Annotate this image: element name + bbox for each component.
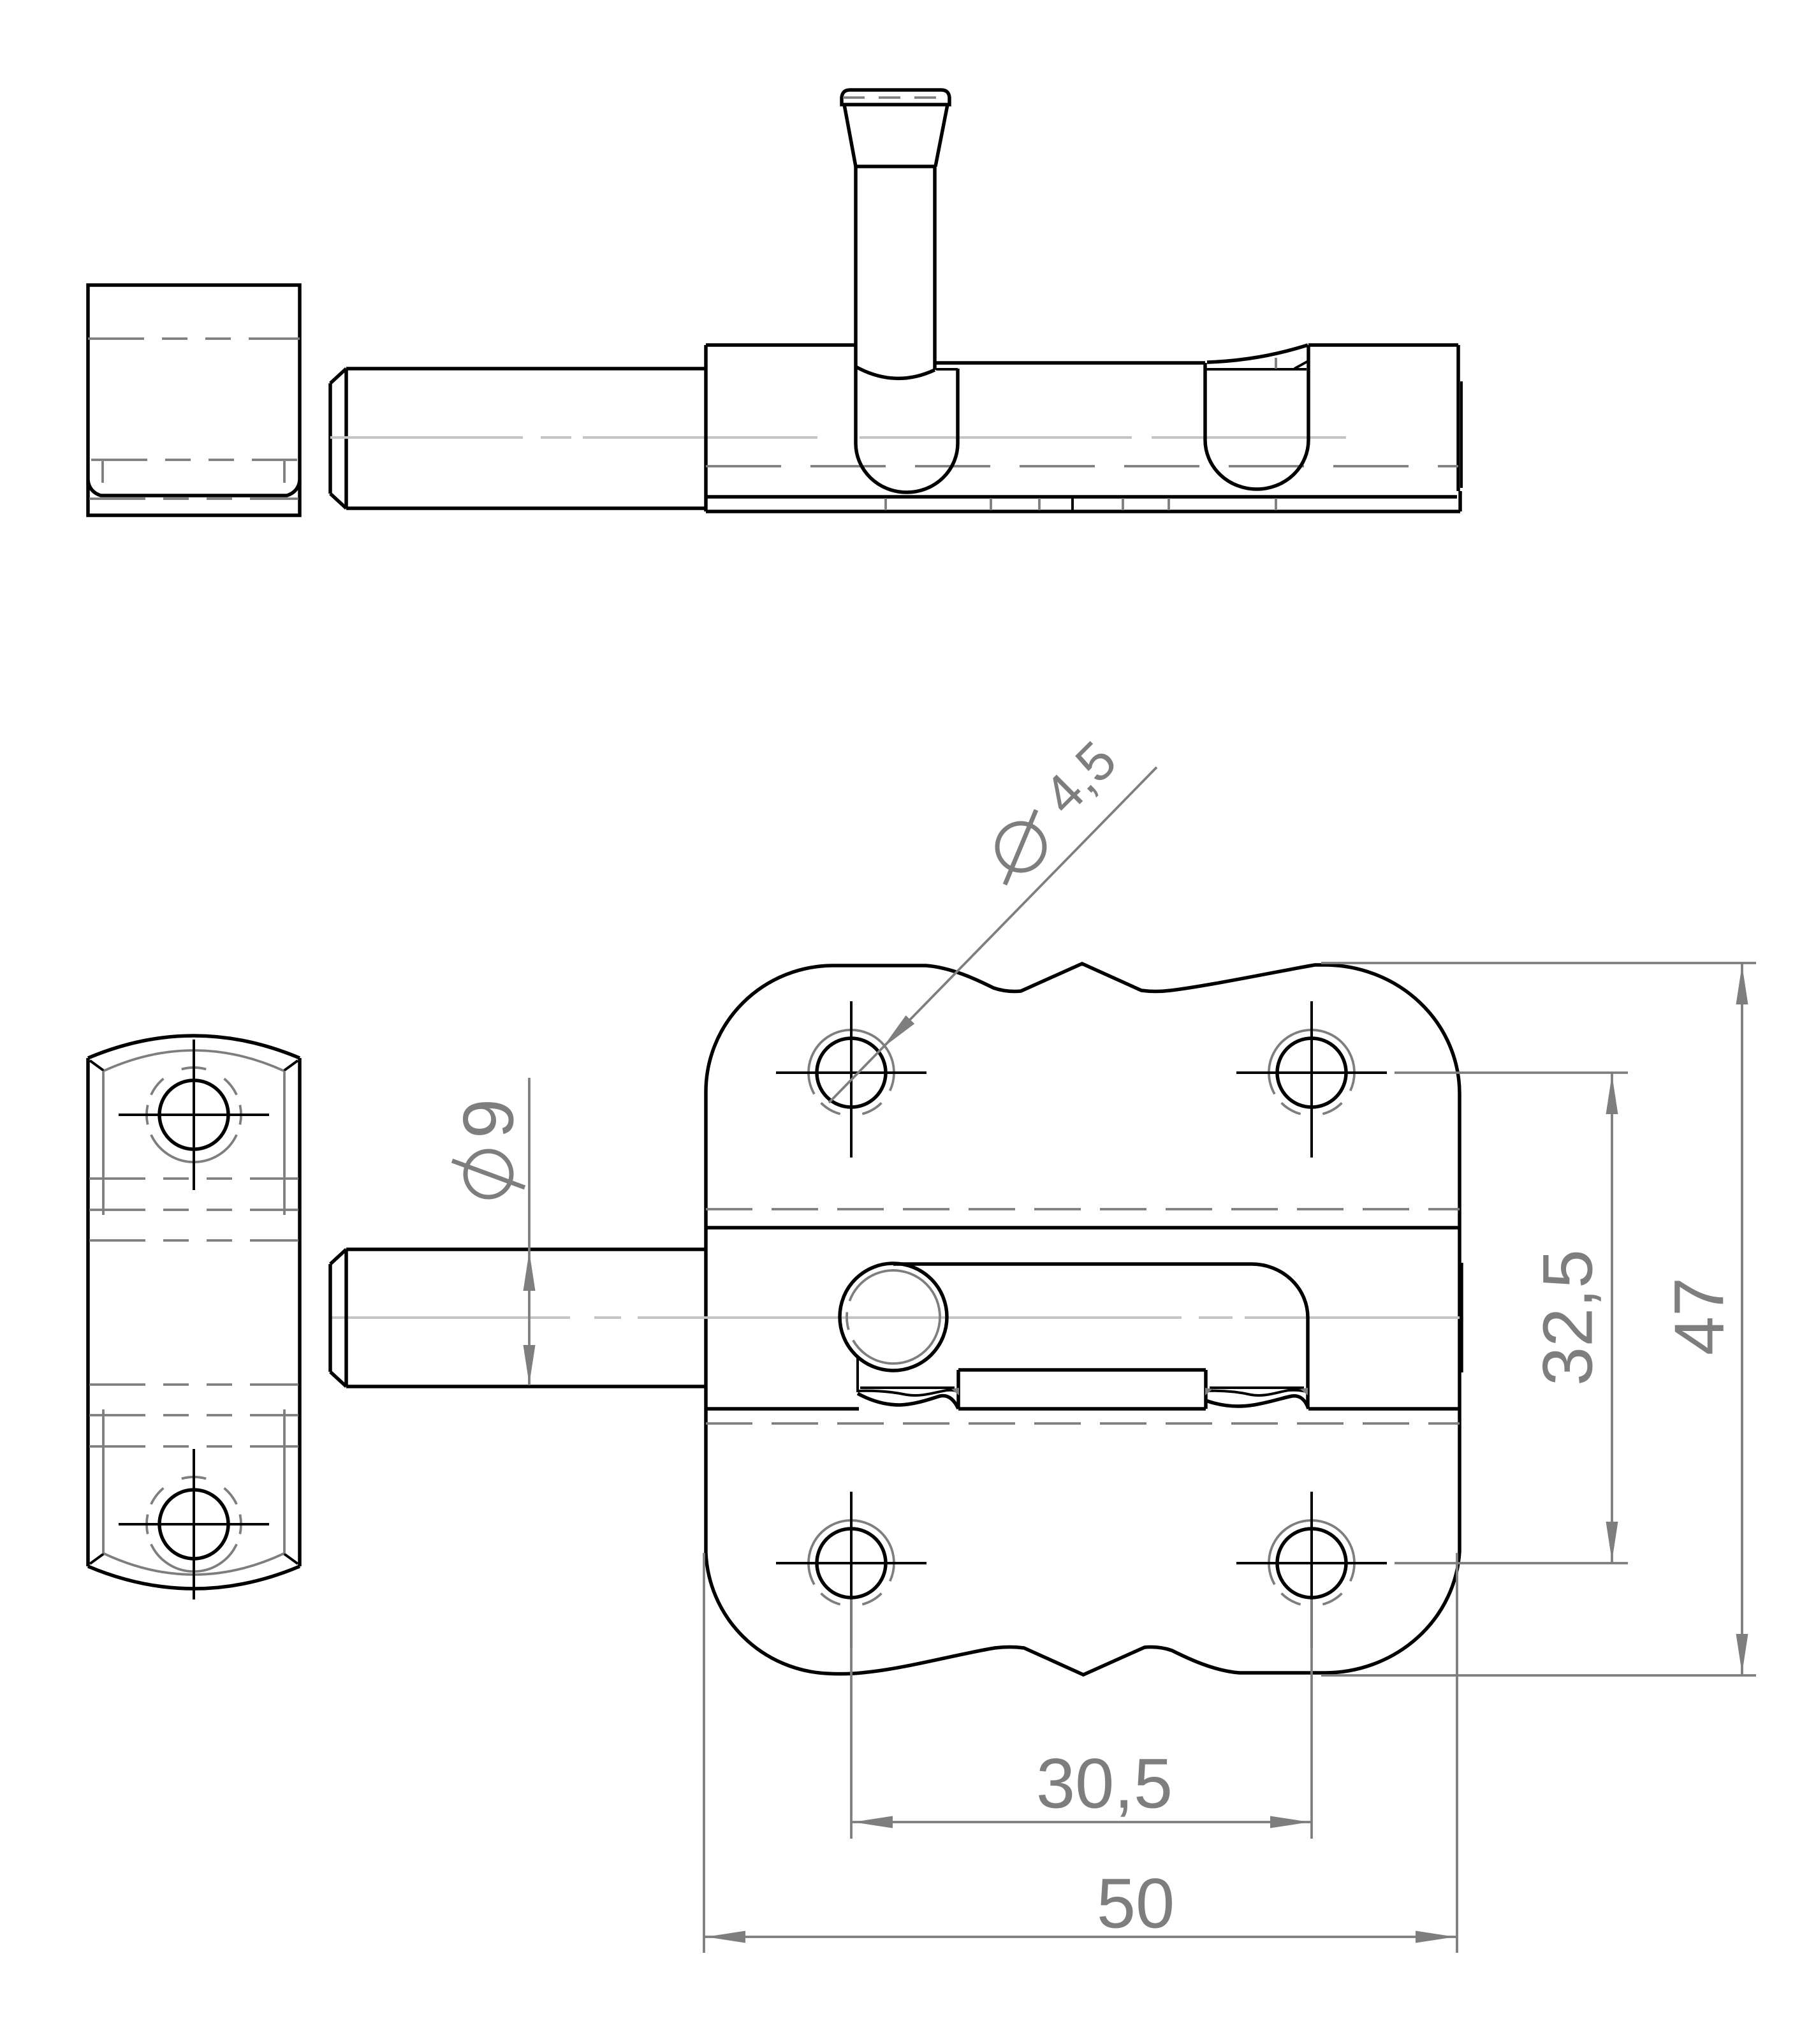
svg-text:32,5: 32,5 — [1529, 1249, 1607, 1386]
svg-text:50: 50 — [1097, 1865, 1175, 1943]
svg-text:30,5: 30,5 — [1036, 1745, 1173, 1823]
svg-text:47: 47 — [1660, 1277, 1739, 1355]
svg-text:9: 9 — [449, 1099, 529, 1138]
